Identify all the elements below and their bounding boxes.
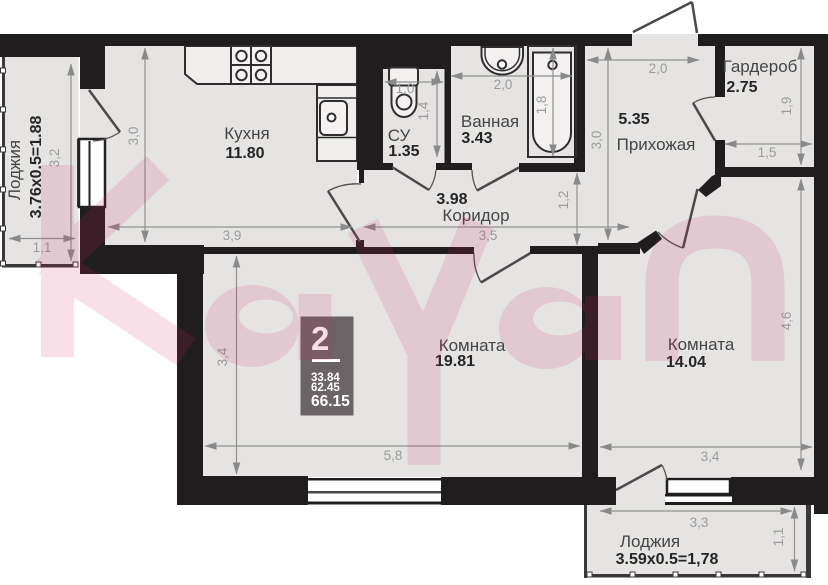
svg-text:1,2: 1,2	[556, 191, 571, 210]
svg-text:2.75: 2.75	[726, 79, 757, 96]
svg-text:Лоджия: Лоджия	[620, 532, 680, 551]
svg-text:3,9: 3,9	[223, 228, 242, 243]
svg-text:5,8: 5,8	[384, 448, 403, 463]
svg-text:Гардероб: Гардероб	[723, 57, 798, 76]
svg-text:66.15: 66.15	[311, 393, 350, 410]
svg-text:3.98: 3.98	[436, 191, 467, 208]
svg-text:3,0: 3,0	[126, 127, 141, 146]
svg-text:3.59x0.5=1,78: 3.59x0.5=1,78	[616, 551, 719, 568]
svg-text:3,0: 3,0	[589, 131, 604, 150]
svg-text:5.35: 5.35	[618, 111, 649, 128]
svg-text:3.43: 3.43	[461, 130, 492, 147]
svg-text:3,2: 3,2	[47, 149, 62, 168]
svg-text:Ванная: Ванная	[461, 112, 519, 131]
svg-text:2,0: 2,0	[649, 61, 668, 76]
svg-text:1,5: 1,5	[758, 145, 777, 160]
svg-text:Прихожая: Прихожая	[617, 135, 696, 154]
svg-text:1,9: 1,9	[779, 97, 794, 116]
svg-text:3,4: 3,4	[701, 449, 720, 464]
svg-text:2,0: 2,0	[494, 77, 513, 92]
svg-text:3,3: 3,3	[690, 515, 709, 530]
svg-text:11.80: 11.80	[225, 145, 264, 162]
svg-text:1,8: 1,8	[534, 96, 549, 115]
svg-text:1,1: 1,1	[771, 528, 786, 547]
svg-text:1,4: 1,4	[416, 101, 431, 120]
svg-text:Кухня: Кухня	[224, 124, 270, 143]
svg-text:1.35: 1.35	[388, 143, 419, 160]
svg-text:Лоджия: Лоджия	[5, 140, 24, 200]
svg-text:19.81: 19.81	[435, 353, 475, 370]
svg-text:1,0: 1,0	[396, 81, 415, 96]
